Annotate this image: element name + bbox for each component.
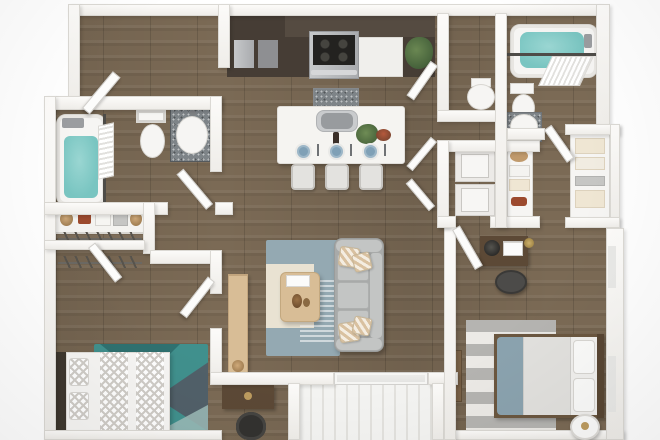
wall-entry-right — [218, 4, 230, 68]
wall-balcony-right — [432, 383, 444, 440]
bedroom-2-desk-chair — [495, 270, 527, 294]
fruit-bowl — [376, 129, 391, 141]
coffee-table-decor — [303, 298, 310, 307]
place-setting-plate — [295, 143, 312, 160]
bed-2-pillow — [573, 340, 595, 374]
bed-2-blue-throw — [497, 337, 523, 415]
wall-bath1-right — [210, 96, 222, 172]
side-table-decor — [581, 422, 589, 430]
bar-stool — [359, 164, 383, 190]
wall-top — [68, 4, 602, 16]
bed-1-pillow — [69, 392, 89, 420]
bed-2-pillow — [573, 378, 595, 412]
bed-1-chevron-runner — [136, 352, 164, 436]
upper-cabinet-band — [285, 13, 435, 39]
sink-1-faucet — [190, 110, 196, 116]
bar-stool — [291, 164, 315, 190]
wall-bath2-left — [495, 13, 507, 228]
console-basket — [232, 360, 244, 372]
sofa-seat-cushion — [337, 282, 369, 309]
cooktop-burners — [313, 35, 355, 65]
island-plant — [356, 124, 378, 144]
cutlery — [350, 144, 352, 156]
bed-1-pillow — [69, 358, 89, 386]
dryer-door-panel — [461, 188, 489, 212]
wall-laundry-top — [437, 140, 540, 152]
wall-outer-left — [44, 96, 56, 440]
cutlery — [384, 144, 386, 156]
place-setting-plate — [328, 143, 345, 160]
linen-stack — [575, 138, 605, 154]
linen-stack — [575, 190, 605, 208]
white-counter-section — [357, 37, 403, 77]
red-shoes — [511, 197, 527, 206]
window-right-lower — [608, 356, 616, 412]
wall-entry-left — [68, 4, 80, 104]
toilet-1-tank — [136, 110, 166, 123]
white-towel-stack — [509, 165, 530, 177]
shower-curtain-1 — [98, 122, 114, 179]
bed-1-chevron-runner — [100, 352, 128, 436]
wall-bath1-bottom-corner — [215, 202, 233, 215]
island-granite-bar — [313, 88, 359, 108]
cutlery — [317, 144, 319, 156]
bedroom-1-desk-chair — [236, 412, 266, 440]
sink-1 — [176, 116, 208, 154]
wc-toilet-bowl — [467, 84, 495, 110]
linen-stack — [575, 157, 605, 170]
washer-door-panel — [461, 154, 489, 178]
bathtub-1-water — [64, 136, 98, 198]
wall-bumpout-right — [610, 124, 620, 228]
floor-plan — [0, 0, 660, 440]
wall-bottom-left — [44, 430, 222, 440]
wall-laundry-left — [437, 140, 449, 228]
window-right-upper — [608, 246, 616, 288]
gray-towel-stack — [575, 176, 605, 186]
coffee-table-decor — [292, 294, 302, 308]
bed-2-duvet — [523, 337, 571, 415]
wall-bath2-bottom — [507, 128, 545, 140]
toilet-2-tank — [510, 83, 534, 94]
toilet-1-bowl — [140, 124, 165, 158]
coffee-table-tray — [286, 275, 310, 287]
wall-bedroom1-right-upper — [210, 250, 222, 294]
wall-living-bottom-left — [210, 372, 334, 385]
laptop — [503, 241, 523, 256]
dishwasher-front — [234, 40, 254, 68]
sliding-glass-door — [334, 372, 428, 385]
tub-2-faucet — [584, 34, 592, 48]
wall-right-upper — [596, 4, 610, 128]
wall-laundry-bottom-left — [437, 216, 456, 228]
background-mask — [0, 0, 68, 96]
media-console — [228, 274, 248, 374]
desk-plant — [524, 238, 534, 248]
wall-bumpout-bottom — [565, 217, 620, 228]
wall-balcony-left — [288, 383, 300, 440]
place-setting-plate — [362, 143, 379, 160]
island-sink-basin — [321, 113, 353, 129]
wall-bath1-top — [44, 96, 222, 110]
wall-bedroom2-left — [444, 216, 456, 440]
bar-stool — [325, 164, 349, 190]
desk-lamp — [484, 240, 500, 256]
desk-decor — [244, 392, 252, 400]
cream-towel-stack — [509, 179, 530, 191]
cabinet-appliance-front — [258, 40, 278, 68]
wall-bedroom1-right-lower — [210, 328, 222, 378]
tub-1-shower-head — [62, 118, 84, 128]
balcony-deck — [298, 383, 434, 440]
sofa-pillow — [351, 315, 372, 336]
bed-1-headboard — [56, 352, 66, 436]
oven-handle — [311, 70, 357, 75]
wall-wc-left — [437, 13, 449, 117]
